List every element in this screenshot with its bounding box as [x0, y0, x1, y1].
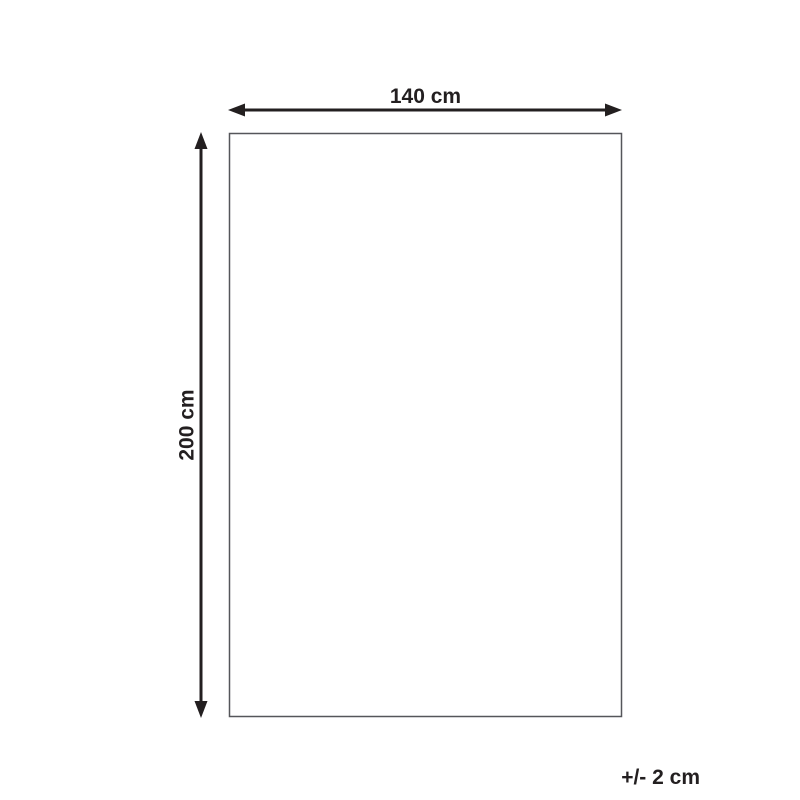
diagram-shapes: [0, 0, 800, 800]
height-arrow-bottom-head: [195, 701, 208, 718]
width-dimension-label: 140 cm: [229, 86, 622, 107]
product-outline: [230, 134, 622, 717]
tolerance-label: +/- 2 cm: [621, 767, 700, 788]
height-arrow-top-head: [195, 132, 208, 149]
product-dimension-diagram: 140 cm 200 cm +/- 2 cm: [0, 0, 800, 800]
height-dimension-label: 200 cm: [177, 389, 198, 460]
